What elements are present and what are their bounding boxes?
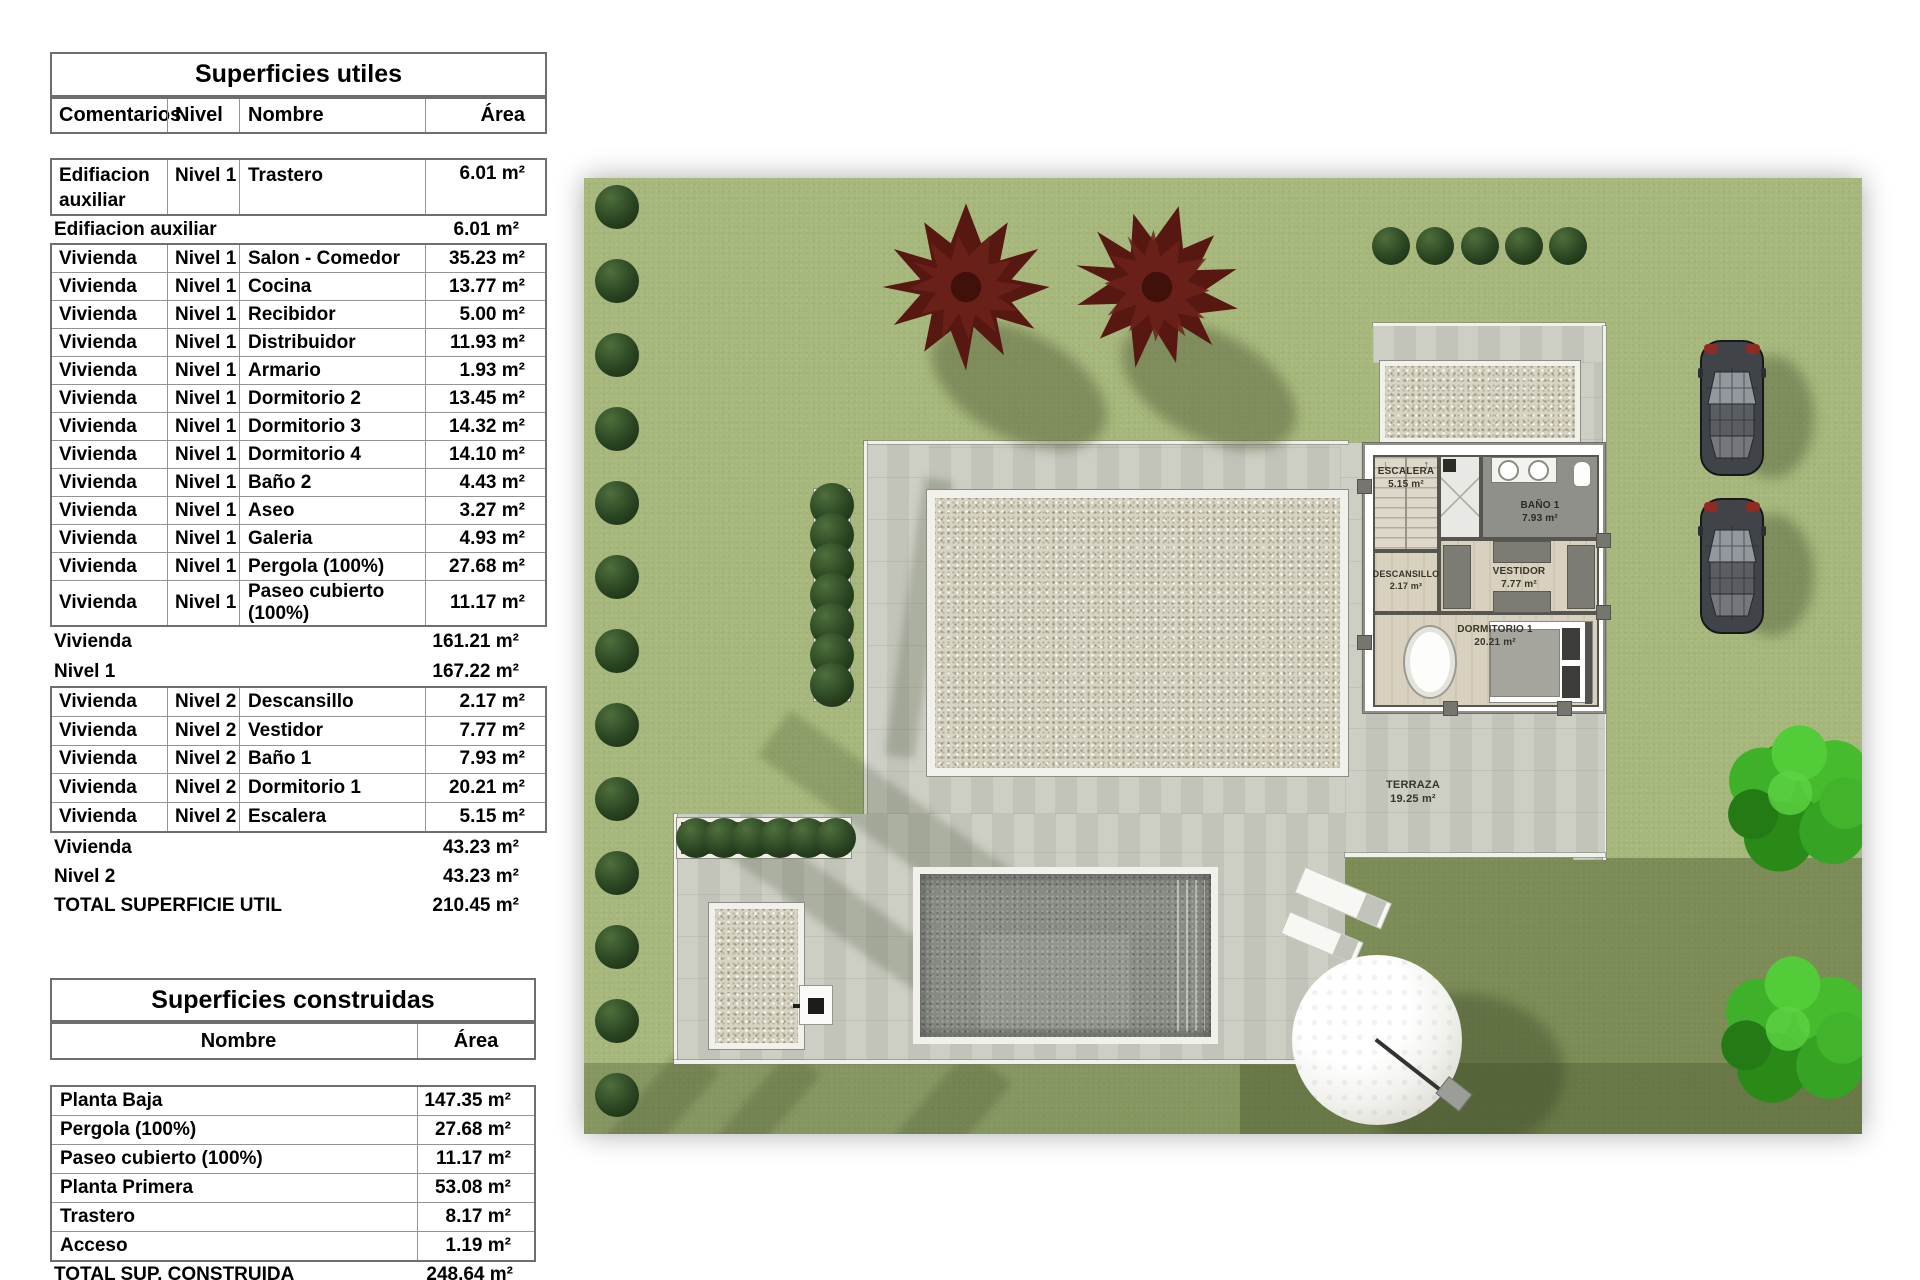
cell-name: Baño 2: [239, 469, 425, 496]
red-tree: [871, 192, 1061, 382]
cell-area: 14.10 m²: [425, 441, 545, 468]
cell-comment: Vivienda: [52, 441, 167, 468]
shrub: [595, 851, 639, 895]
shrub: [1372, 227, 1410, 265]
cell-area: 27.68 m²: [417, 1116, 534, 1144]
shrub: [1416, 227, 1454, 265]
summary-value: 43.23 m²: [369, 866, 547, 888]
table-row: ViviendaNivel 1Galeria4.93 m²: [52, 524, 545, 552]
cell-comment: Vivienda: [52, 385, 167, 412]
cell-name: Pergola (100%): [52, 1116, 417, 1144]
cell-name: Armario: [239, 357, 425, 384]
column-header-nombre: Nombre: [52, 1024, 417, 1058]
shrub: [595, 259, 639, 303]
cell-area: 6.01 m²: [425, 160, 545, 214]
wall-pillar: [1443, 701, 1458, 716]
cell-name: Planta Primera: [52, 1174, 417, 1202]
cell-area: 1.93 m²: [425, 357, 545, 384]
wardrobe: [1567, 545, 1595, 609]
cell-name: Galeria: [239, 525, 425, 552]
table-row: ViviendaNivel 1Dormitorio 414.10 m²: [52, 440, 545, 468]
shrub: [595, 1073, 639, 1117]
summary-label: Nivel 2: [50, 866, 115, 888]
table-utiles-block-nivel2: ViviendaNivel 2Descansillo2.17 m² Vivien…: [50, 686, 547, 833]
car: [1698, 338, 1766, 478]
summary-row: Nivel 2 43.23 m²: [50, 862, 547, 891]
cell-level: Nivel 1: [167, 413, 239, 440]
cell-name: Salon - Comedor: [239, 245, 425, 272]
cell-area: 4.93 m²: [425, 525, 545, 552]
summary-value: 6.01 m²: [369, 219, 547, 241]
column-header-area: Área: [417, 1024, 534, 1058]
summary-label: Nivel 1: [50, 661, 115, 683]
column-header-area: Área: [425, 99, 545, 132]
cell-comment: Vivienda: [52, 273, 167, 300]
shrub: [595, 407, 639, 451]
cell-name: Cocina: [239, 273, 425, 300]
cell-area: 7.77 m²: [425, 717, 545, 745]
terraza-label: TERRAZA 19.25 m²: [1353, 778, 1473, 807]
table-row: ViviendaNivel 1Baño 24.43 m²: [52, 468, 545, 496]
cell-name: Paseo cubierto (100%): [52, 1145, 417, 1173]
shrub: [595, 333, 639, 377]
driveway-top: [1373, 326, 1605, 363]
summary-label: Vivienda: [50, 631, 132, 653]
sink: [1528, 460, 1549, 481]
shrub: [595, 481, 639, 525]
room-area: 2.17 m²: [1390, 581, 1422, 591]
cell-area: 20.21 m²: [425, 774, 545, 802]
table-row: ViviendaNivel 1Paseo cubierto (100%)11.1…: [52, 580, 545, 625]
cell-name: Descansillo: [239, 688, 425, 716]
gravel-court: [1380, 361, 1580, 443]
cell-name: Dormitorio 4: [239, 441, 425, 468]
table-row: ViviendaNivel 1Cocina13.77 m²: [52, 272, 545, 300]
cell-name: Dormitorio 3: [239, 413, 425, 440]
room-name: DESCANSILLO: [1373, 569, 1440, 579]
cell-level: Nivel 1: [167, 301, 239, 328]
shrub: [810, 663, 854, 707]
pool-steps: [1177, 880, 1205, 1031]
room-bano1: BAÑO 1 7.93 m²: [1481, 455, 1599, 539]
shrub: [1549, 227, 1587, 265]
cell-area: 27.68 m²: [425, 553, 545, 580]
column-header-comentarios: Comentarios: [52, 99, 167, 132]
column-header-nivel: Nivel: [167, 99, 239, 132]
pillow: [1562, 666, 1580, 698]
cell-name: Trastero: [52, 1203, 417, 1231]
cell-comment: Vivienda: [52, 357, 167, 384]
cell-area: 35.23 m²: [425, 245, 545, 272]
shower-head: [1443, 459, 1456, 472]
cell-area: 2.17 m²: [425, 688, 545, 716]
cell-area: 3.27 m²: [425, 497, 545, 524]
headboard: [1585, 622, 1592, 704]
table-utiles-block-aux: Edifiacion auxiliar Nivel 1 Trastero 6.0…: [50, 158, 547, 216]
room-label: BAÑO 1 7.93 m²: [1483, 499, 1597, 525]
room-name: DORMITORIO 1: [1457, 624, 1533, 635]
cell-name: Trastero: [239, 160, 425, 214]
swimming-pool: [913, 867, 1218, 1044]
cell-area: 1.19 m²: [417, 1232, 534, 1260]
summary-row: Nivel 1 167.22 m²: [50, 657, 547, 686]
room-vestidor: VESTIDOR 7.77 m²: [1439, 539, 1599, 613]
shrub: [595, 629, 639, 673]
page: Superficies utiles Comentarios Nivel Nom…: [0, 0, 1920, 1280]
table-row: ViviendaNivel 2Dormitorio 120.21 m²: [52, 773, 545, 802]
red-tree: [1062, 192, 1252, 382]
cell-name: Baño 1: [239, 746, 425, 774]
room-area: 20.21 m²: [1474, 637, 1516, 648]
shrub: [1505, 227, 1543, 265]
cell-comment: Edifiacion auxiliar: [52, 160, 167, 214]
summary-label: Edifiacion auxiliar: [50, 219, 217, 241]
table-row: ViviendaNivel 2Escalera5.15 m²: [52, 802, 545, 831]
sink-counter: [1491, 457, 1557, 483]
cell-name: Dormitorio 2: [239, 385, 425, 412]
table-row: Planta Baja147.35 m²: [52, 1087, 534, 1115]
cell-name: Acceso: [52, 1232, 417, 1260]
cell-comment: Vivienda: [52, 525, 167, 552]
wall-pillar: [1357, 479, 1372, 494]
cell-level: Nivel 1: [167, 441, 239, 468]
access-box: [808, 998, 824, 1014]
cell-name: Recibidor: [239, 301, 425, 328]
cell-area: 11.17 m²: [425, 581, 545, 625]
table-row: Paseo cubierto (100%)11.17 m²: [52, 1144, 534, 1173]
shrub: [595, 555, 639, 599]
table-title-text: Superficies utiles: [195, 60, 402, 89]
cell-name: Vestidor: [239, 717, 425, 745]
cell-comment: Vivienda: [52, 717, 167, 745]
cell-level: Nivel 2: [167, 803, 239, 831]
cell-comment: Vivienda: [52, 329, 167, 356]
cell-area: 147.35 m²: [417, 1087, 534, 1115]
total-row: TOTAL SUPERFICIE UTIL 210.45 m²: [50, 891, 547, 921]
cell-name: Escalera: [239, 803, 425, 831]
cell-level: Nivel 2: [167, 717, 239, 745]
access-pad: [799, 985, 833, 1025]
table-row: Acceso1.19 m²: [52, 1231, 534, 1260]
total-row: TOTAL SUP. CONSTRUIDA 248.64 m²: [50, 1262, 536, 1280]
cell-comment: Vivienda: [52, 746, 167, 774]
cell-area: 5.15 m²: [425, 803, 545, 831]
room-name: VESTIDOR: [1493, 566, 1546, 577]
table-row: ViviendaNivel 1Distribuidor11.93 m²: [52, 328, 545, 356]
shrub: [816, 818, 856, 858]
cell-area: 53.08 m²: [417, 1174, 534, 1202]
wall-line: [674, 1060, 1345, 1064]
cell-level: Nivel 1: [167, 329, 239, 356]
table-row: ViviendaNivel 2Baño 17.93 m²: [52, 745, 545, 774]
car: [1698, 496, 1766, 636]
cell-comment: Vivienda: [52, 413, 167, 440]
cell-level: Nivel 1: [167, 497, 239, 524]
table-utiles-header: Comentarios Nivel Nombre Área: [50, 97, 547, 134]
cell-comment: Vivienda: [52, 245, 167, 272]
cell-area: 11.17 m²: [417, 1145, 534, 1173]
wardrobe: [1493, 591, 1551, 613]
table-row: Edifiacion auxiliar Nivel 1 Trastero 6.0…: [52, 160, 545, 214]
access-connector: [793, 1004, 800, 1008]
shrub: [595, 185, 639, 229]
wall-line: [864, 441, 867, 814]
cell-area: 4.43 m²: [425, 469, 545, 496]
cell-name: Paseo cubierto (100%): [239, 581, 425, 625]
green-tree: [1705, 705, 1862, 890]
wall-pillar: [1596, 533, 1611, 548]
table-row: ViviendaNivel 1Dormitorio 314.32 m²: [52, 412, 545, 440]
room-label: VESTIDOR 7.77 m²: [1469, 565, 1569, 591]
cell-area: 8.17 m²: [417, 1203, 534, 1231]
gravel-roof-area: [927, 490, 1348, 776]
shower: [1439, 455, 1481, 539]
room-dormitorio1: DORMITORIO 1 20.21 m²: [1373, 613, 1599, 707]
cell-area: 11.93 m²: [425, 329, 545, 356]
cell-level: Nivel 1: [167, 160, 239, 214]
toilet: [1573, 461, 1591, 487]
shrub: [1461, 227, 1499, 265]
table-row: ViviendaNivel 1Salon - Comedor35.23 m²: [52, 245, 545, 272]
total-label: TOTAL SUPERFICIE UTIL: [50, 895, 282, 917]
summary-row: Vivienda 43.23 m²: [50, 833, 547, 862]
room-name: ESCALERA: [1378, 466, 1435, 477]
wall-pillar: [1596, 605, 1611, 620]
cell-area: 13.77 m²: [425, 273, 545, 300]
table-construidas-header: Nombre Área: [50, 1022, 536, 1060]
room-area: 7.93 m²: [1522, 513, 1558, 524]
summary-value: 43.23 m²: [369, 837, 547, 859]
room-area: 19.25 m²: [1390, 793, 1436, 805]
room-label: DESCANSILLO 2.17 m²: [1359, 569, 1453, 592]
wall-line: [1345, 853, 1605, 857]
table-row: ViviendaNivel 1Armario1.93 m²: [52, 356, 545, 384]
total-value: 248.64 m²: [373, 1264, 536, 1280]
pillow: [1562, 628, 1580, 660]
storage-roof-gravel: [709, 903, 804, 1049]
cell-area: 13.45 m²: [425, 385, 545, 412]
cell-level: Nivel 2: [167, 688, 239, 716]
cell-area: 7.93 m²: [425, 746, 545, 774]
green-tree: [1700, 938, 1862, 1123]
cell-level: Nivel 1: [167, 469, 239, 496]
cell-level: Nivel 1: [167, 581, 239, 625]
shrub: [595, 777, 639, 821]
cell-name: Pergola (100%): [239, 553, 425, 580]
cell-level: Nivel 1: [167, 553, 239, 580]
wardrobe: [1493, 541, 1551, 563]
cell-level: Nivel 2: [167, 774, 239, 802]
cell-comment: Vivienda: [52, 803, 167, 831]
cell-area: 5.00 m²: [425, 301, 545, 328]
cell-level: Nivel 1: [167, 273, 239, 300]
table-row: Pergola (100%)27.68 m²: [52, 1115, 534, 1144]
cell-level: Nivel 1: [167, 385, 239, 412]
table-row: ViviendaNivel 1Pergola (100%)27.68 m²: [52, 552, 545, 580]
room-area: 7.77 m²: [1501, 579, 1537, 590]
room-area: 5.15 m²: [1388, 479, 1424, 490]
table-title-text: Superficies construidas: [151, 986, 434, 1015]
table-row: ViviendaNivel 2Descansillo2.17 m²: [52, 688, 545, 716]
room-label: ESCALERA 5.15 m²: [1373, 465, 1439, 491]
total-label: TOTAL SUP. CONSTRUIDA: [50, 1264, 294, 1280]
room-name: TERRAZA: [1386, 779, 1440, 791]
table-row: ViviendaNivel 1Dormitorio 213.45 m²: [52, 384, 545, 412]
room-name: BAÑO 1: [1521, 500, 1560, 511]
table-row: ViviendaNivel 1Recibidor5.00 m²: [52, 300, 545, 328]
cell-comment: Vivienda: [52, 581, 167, 625]
room-label: DORMITORIO 1 20.21 m²: [1435, 623, 1555, 649]
cell-comment: Vivienda: [52, 688, 167, 716]
table-utiles-title: Superficies utiles: [50, 52, 547, 97]
summary-row: Vivienda 161.21 m²: [50, 627, 547, 657]
summary-label: Vivienda: [50, 837, 132, 859]
table-utiles-block-nivel1: ViviendaNivel 1Salon - Comedor35.23 m² V…: [50, 243, 547, 627]
cell-comment: Vivienda: [52, 497, 167, 524]
cell-comment: Vivienda: [52, 774, 167, 802]
summary-row: Edifiacion auxiliar 6.01 m²: [50, 216, 547, 243]
cell-comment: Vivienda: [52, 469, 167, 496]
cell-area: 14.32 m²: [425, 413, 545, 440]
house-floorplan: ↓ ↑ ESCALERA 5.15 m² BAÑO 1 7.93: [1363, 443, 1605, 713]
cell-level: Nivel 1: [167, 245, 239, 272]
cell-name: Planta Baja: [52, 1087, 417, 1115]
cell-level: Nivel 2: [167, 746, 239, 774]
site-plan: ↓ ↑ ESCALERA 5.15 m² BAÑO 1 7.93: [584, 178, 1862, 1134]
cell-name: Distribuidor: [239, 329, 425, 356]
shrub: [595, 999, 639, 1043]
pool-reflection: [980, 934, 1130, 1029]
table-row: ViviendaNivel 2Vestidor7.77 m²: [52, 716, 545, 745]
summary-value: 167.22 m²: [369, 661, 547, 683]
table-row: ViviendaNivel 1Aseo3.27 m²: [52, 496, 545, 524]
shrub: [595, 925, 639, 969]
cell-name: Aseo: [239, 497, 425, 524]
cell-name: Dormitorio 1: [239, 774, 425, 802]
table-row: Planta Primera53.08 m²: [52, 1173, 534, 1202]
summary-value: 161.21 m²: [369, 631, 547, 653]
table-construidas-title: Superficies construidas: [50, 978, 536, 1022]
cell-comment: Vivienda: [52, 301, 167, 328]
cell-comment: Vivienda: [52, 553, 167, 580]
wall-pillar: [1357, 635, 1372, 650]
table-row: Trastero8.17 m²: [52, 1202, 534, 1231]
wall-pillar: [1557, 701, 1572, 716]
column-header-nombre: Nombre: [239, 99, 425, 132]
sink: [1498, 460, 1519, 481]
total-value: 210.45 m²: [369, 895, 547, 917]
table-construidas-block: Planta Baja147.35 m² Pergola (100%)27.68…: [50, 1085, 536, 1262]
shrub: [595, 703, 639, 747]
cell-level: Nivel 1: [167, 357, 239, 384]
cell-level: Nivel 1: [167, 525, 239, 552]
